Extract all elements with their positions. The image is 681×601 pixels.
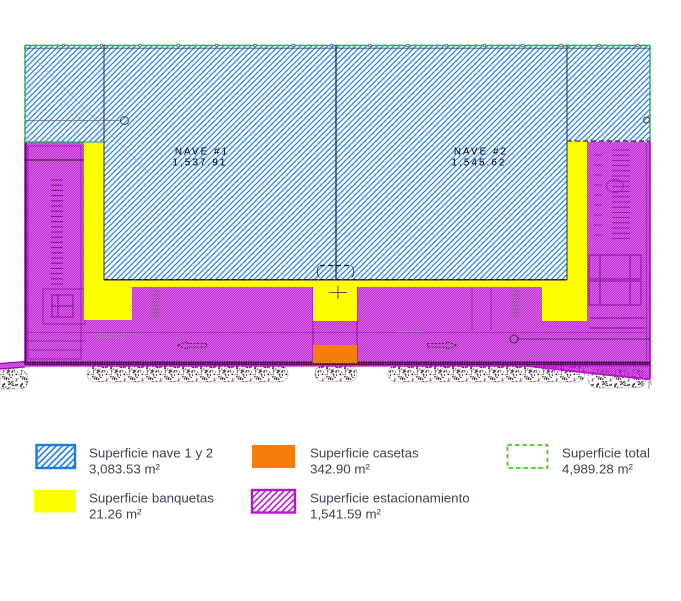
svg-text:1,537.91: 1,537.91	[173, 158, 228, 169]
svg-text:NAVE #2: NAVE #2	[454, 147, 508, 158]
svg-text:21.26 m²: 21.26 m²	[89, 507, 142, 522]
svg-text:1,545.62: 1,545.62	[452, 158, 507, 169]
svg-text:Superficie estacionamiento: Superficie estacionamiento	[310, 491, 470, 506]
svg-text:NAVE #1: NAVE #1	[175, 147, 229, 158]
svg-text:Superficie casetas: Superficie casetas	[310, 446, 419, 461]
svg-text:342.90 m²: 342.90 m²	[310, 462, 370, 477]
svg-text:Superficie nave 1 y 2: Superficie nave 1 y 2	[89, 446, 213, 461]
svg-text:4,989.28 m²: 4,989.28 m²	[562, 462, 634, 477]
svg-text:3,083.53 m²: 3,083.53 m²	[89, 462, 161, 477]
svg-text:Superficie total: Superficie total	[562, 446, 650, 461]
svg-text:1,541.59 m²: 1,541.59 m²	[310, 507, 382, 522]
svg-text:Superficie banquetas: Superficie banquetas	[89, 491, 214, 506]
